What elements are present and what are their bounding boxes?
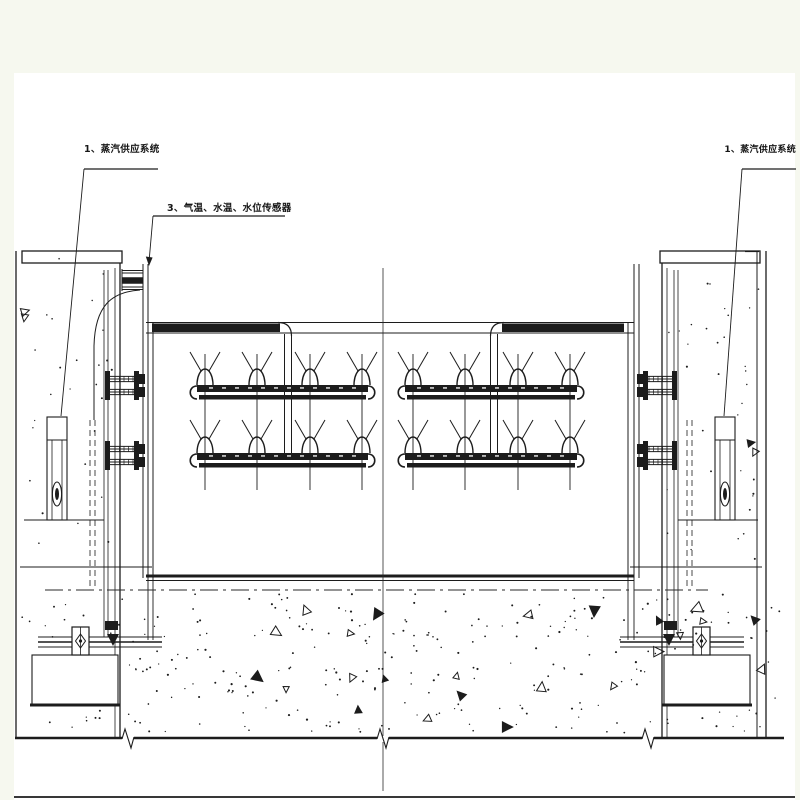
label-sensors: 3、气温、水温、水位传感器 — [167, 202, 292, 214]
engineering-section-drawing: 1、蒸汽供应系统 3、气温、水温、水位传感器 1、蒸汽供应系统 — [0, 0, 800, 800]
label-steam-supply-right: 1、蒸汽供应系统 — [724, 143, 796, 155]
label-steam-supply-left: 1、蒸汽供应系统 — [84, 143, 160, 155]
